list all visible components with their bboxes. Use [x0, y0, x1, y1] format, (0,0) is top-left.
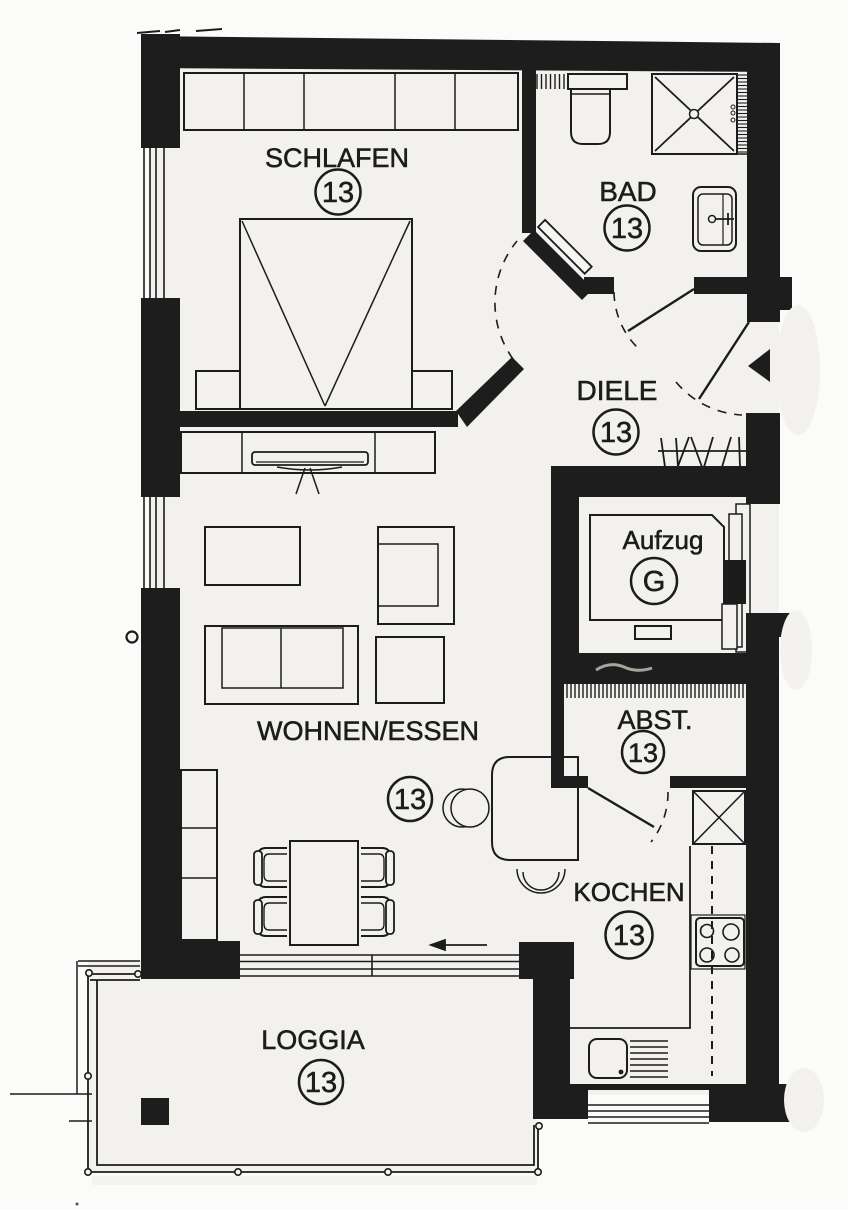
svg-text:13: 13	[600, 417, 632, 449]
svg-text:13: 13	[322, 177, 354, 209]
svg-text:Aufzug: Aufzug	[623, 525, 704, 555]
svg-text:LOGGIA: LOGGIA	[261, 1025, 365, 1055]
svg-text:13: 13	[305, 1067, 337, 1099]
svg-text:DIELE: DIELE	[577, 375, 658, 406]
svg-text:13: 13	[611, 213, 643, 245]
svg-text:13: 13	[394, 784, 426, 816]
svg-text:13: 13	[613, 920, 645, 952]
svg-text:KOCHEN: KOCHEN	[573, 877, 684, 907]
svg-text:ABST.: ABST.	[617, 705, 692, 735]
svg-text:BAD: BAD	[599, 176, 657, 207]
svg-text:WOHNEN/ESSEN: WOHNEN/ESSEN	[257, 716, 479, 746]
svg-text:13: 13	[628, 738, 658, 768]
svg-text:G: G	[643, 566, 666, 598]
